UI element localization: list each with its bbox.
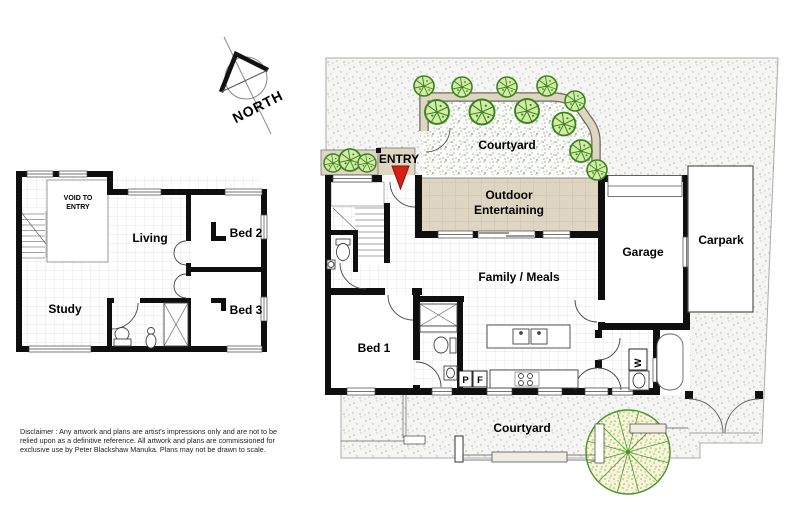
bath-toilet	[115, 328, 129, 341]
void-box	[47, 180, 108, 262]
tree-icon	[497, 77, 517, 97]
upper-floor-plan	[16, 171, 267, 352]
room-label-void-1: VOID TO	[64, 195, 93, 202]
room-label-carpark: Carpark	[698, 233, 744, 247]
room-label-courtyard-top: Courtyard	[478, 138, 535, 152]
tree-icon	[470, 100, 495, 125]
tree-icon	[570, 140, 592, 162]
room-label-study: Study	[48, 302, 82, 316]
room-label-outdoor-1: Outdoor	[485, 188, 533, 202]
disclaimer-text: Disclaimer : Any artwork and plans are a…	[20, 427, 277, 454]
tree-icon	[565, 91, 585, 111]
tree-icon	[587, 160, 607, 180]
room-label-garage: Garage	[622, 245, 664, 259]
tree-icon	[452, 77, 472, 97]
room-label-entry: ENTRY	[379, 152, 419, 166]
tree-icon	[537, 76, 557, 96]
tree-icon	[414, 76, 434, 96]
washer-label: W	[633, 358, 644, 367]
north-label: NORTH	[230, 87, 286, 126]
room-label-bed2: Bed 2	[230, 226, 263, 240]
garage-door	[608, 176, 682, 197]
pantry-label: P	[462, 375, 469, 386]
tree-icon	[358, 154, 376, 172]
disclaimer-line-2: relied upon as a definitive reference. A…	[20, 436, 275, 445]
floorplan-page: NORTH VOID TO ENTRY Living Bed 2 Bed 3 S…	[0, 0, 790, 527]
room-label-courtyard-bottom: Courtyard	[493, 421, 550, 435]
room-label-living: Living	[132, 231, 167, 245]
fridge-label: F	[477, 375, 483, 386]
room-label-family-meals: Family / Meals	[478, 270, 560, 284]
tree-icon	[553, 113, 576, 136]
tree-icon	[339, 149, 361, 171]
ensuite-toilet	[434, 337, 448, 353]
water-tank	[657, 334, 683, 390]
north-compass-icon: NORTH	[221, 37, 286, 134]
floorplan-drawing: NORTH VOID TO ENTRY Living Bed 2 Bed 3 S…	[0, 0, 790, 527]
tree-icon	[425, 100, 449, 124]
room-label-bed3: Bed 3	[230, 303, 263, 317]
bath-basin	[148, 328, 155, 335]
room-label-outdoor-2: Entertaining	[474, 203, 544, 217]
room-label-bed1: Bed 1	[358, 341, 391, 355]
disclaimer-line-3: exclusive use by Peter Blackshaw Manuka.…	[20, 445, 266, 454]
tree-icon	[515, 99, 539, 123]
room-label-void-2: ENTRY	[66, 204, 90, 211]
disclaimer-line-1: Disclaimer : Any artwork and plans are a…	[20, 427, 277, 436]
